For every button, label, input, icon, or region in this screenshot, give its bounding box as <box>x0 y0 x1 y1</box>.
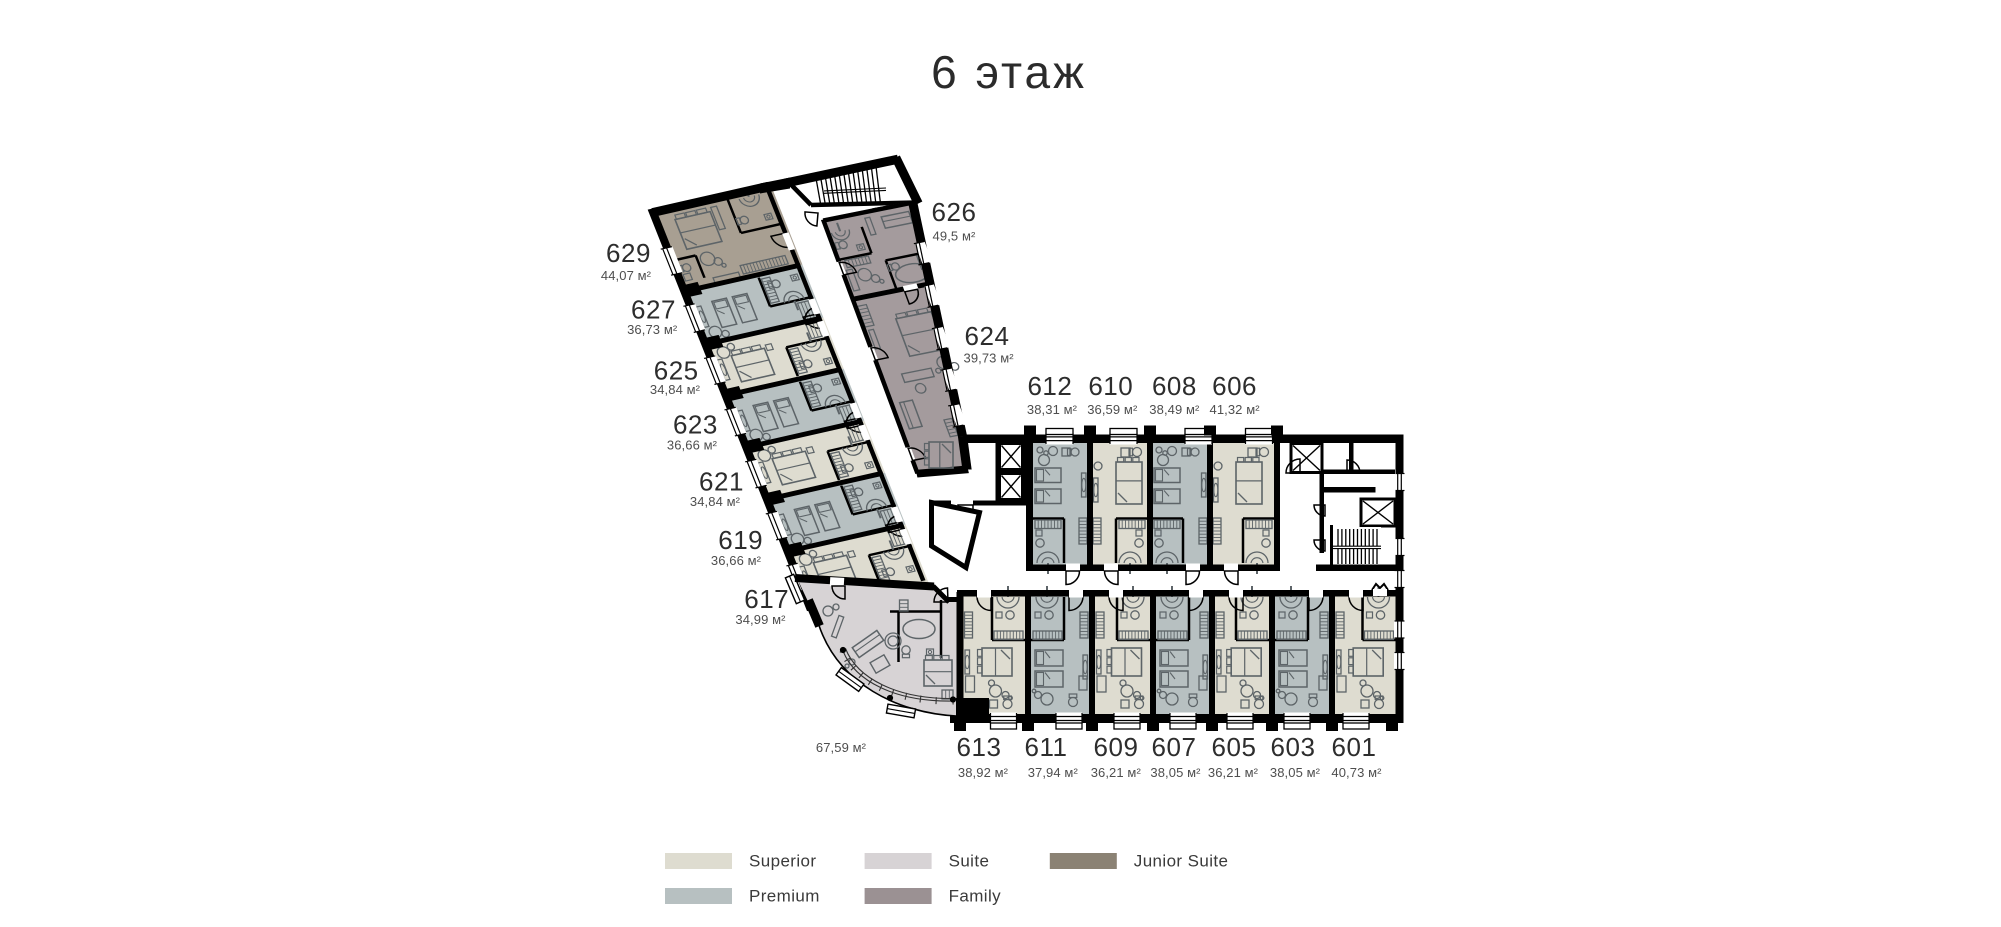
svg-text:606: 606 <box>1212 371 1257 401</box>
svg-text:617: 617 <box>744 584 789 614</box>
svg-text:613: 613 <box>957 732 1002 762</box>
svg-text:619: 619 <box>718 525 763 555</box>
svg-text:624: 624 <box>965 321 1010 351</box>
svg-text:Superior: Superior <box>749 852 816 871</box>
svg-text:36,66 м²: 36,66 м² <box>711 553 762 568</box>
svg-text:Suite: Suite <box>949 852 990 871</box>
svg-text:627: 627 <box>631 294 676 324</box>
svg-text:629: 629 <box>606 238 651 268</box>
svg-text:36,59 м²: 36,59 м² <box>1087 402 1138 417</box>
svg-text:603: 603 <box>1271 732 1316 762</box>
svg-text:36,73 м²: 36,73 м² <box>627 322 678 337</box>
svg-text:34,84 м²: 34,84 м² <box>650 382 701 397</box>
svg-text:621: 621 <box>699 466 744 496</box>
svg-text:67,59 м²: 67,59 м² <box>816 740 867 755</box>
svg-text:6 этаж: 6 этаж <box>931 46 1087 98</box>
svg-text:Junior Suite: Junior Suite <box>1134 852 1229 871</box>
svg-text:609: 609 <box>1094 732 1139 762</box>
svg-text:38,92 м²: 38,92 м² <box>958 765 1009 780</box>
svg-text:38,31 м²: 38,31 м² <box>1027 402 1078 417</box>
svg-text:607: 607 <box>1152 732 1197 762</box>
svg-text:Premium: Premium <box>749 887 820 906</box>
svg-text:601: 601 <box>1332 732 1377 762</box>
svg-text:625: 625 <box>654 355 699 385</box>
svg-text:40,73 м²: 40,73 м² <box>1331 765 1382 780</box>
svg-text:41,32 м²: 41,32 м² <box>1209 402 1260 417</box>
svg-text:44,07 м²: 44,07 м² <box>601 268 652 283</box>
svg-text:49,5 м²: 49,5 м² <box>933 229 976 244</box>
svg-text:612: 612 <box>1027 371 1072 401</box>
svg-text:38,49 м²: 38,49 м² <box>1149 402 1200 417</box>
svg-text:38,05 м²: 38,05 м² <box>1150 765 1201 780</box>
svg-text:37,94 м²: 37,94 м² <box>1028 765 1079 780</box>
svg-text:605: 605 <box>1212 732 1257 762</box>
svg-text:36,21 м²: 36,21 м² <box>1091 765 1142 780</box>
svg-text:608: 608 <box>1152 371 1197 401</box>
svg-text:34,84 м²: 34,84 м² <box>690 494 741 509</box>
svg-text:Family: Family <box>949 887 1002 906</box>
svg-text:611: 611 <box>1025 732 1068 762</box>
svg-text:626: 626 <box>932 197 977 227</box>
svg-text:36,21 м²: 36,21 м² <box>1208 765 1259 780</box>
svg-text:38,05 м²: 38,05 м² <box>1270 765 1321 780</box>
svg-text:39,73 м²: 39,73 м² <box>963 351 1014 366</box>
svg-text:36,66 м²: 36,66 м² <box>667 438 718 453</box>
svg-text:34,99 м²: 34,99 м² <box>735 612 786 627</box>
svg-text:623: 623 <box>673 410 718 440</box>
svg-text:610: 610 <box>1088 371 1133 401</box>
